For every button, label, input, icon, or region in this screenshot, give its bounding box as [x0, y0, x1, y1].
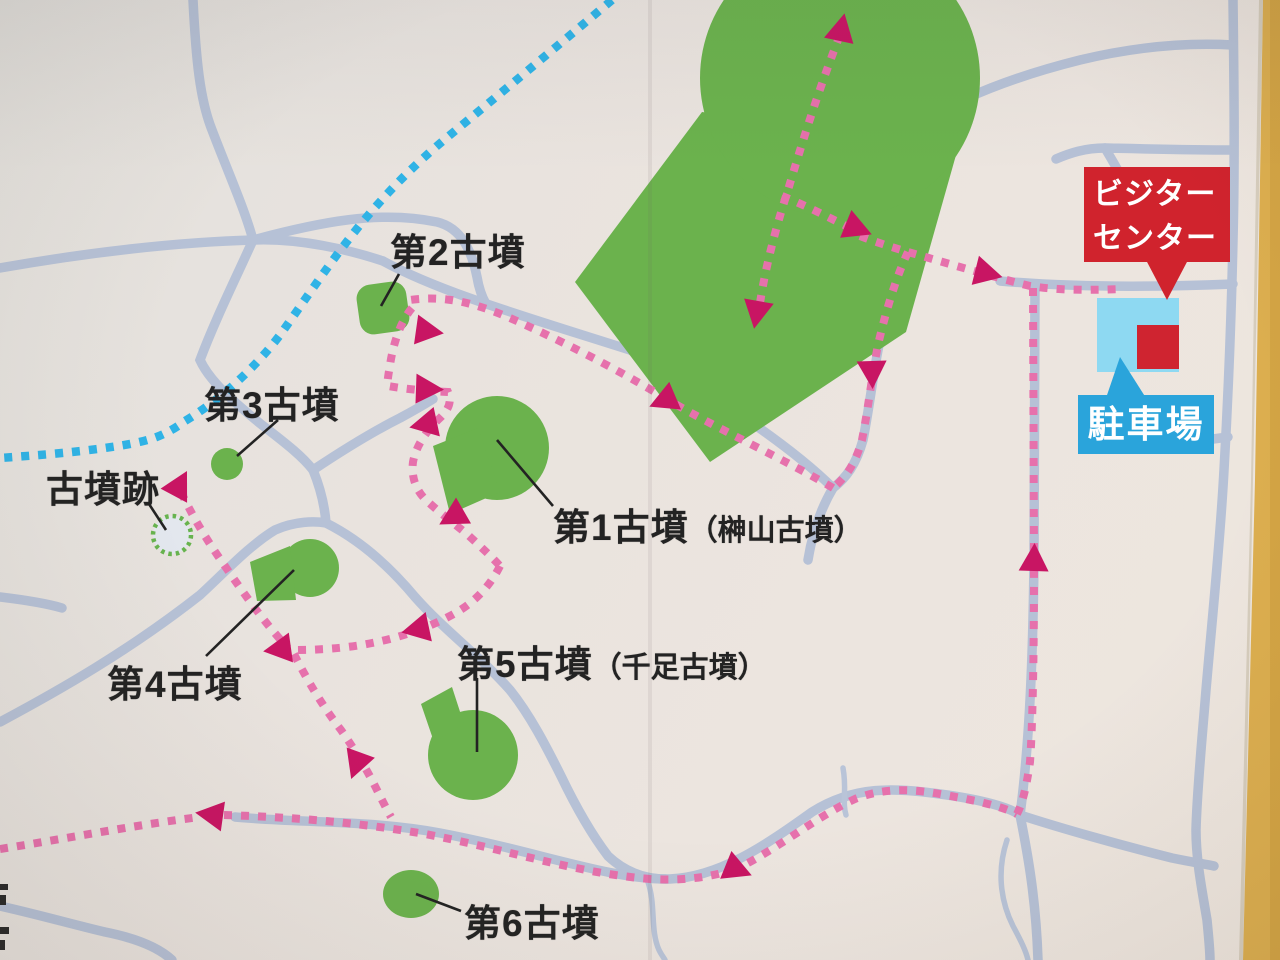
route-arrow [337, 748, 375, 785]
mound-kofun4 [250, 539, 339, 601]
label-kofun3-text: 第3古墳 [204, 385, 340, 426]
cropped-glyph-fragments [0, 884, 9, 950]
label-kofun1: 第1古墳（榊山古墳） [553, 497, 863, 551]
mound-kofun-ato-ring [153, 516, 191, 554]
label-kofun4: 第4古墳 [107, 654, 243, 708]
label-kofun2: 第2古墳 [390, 222, 526, 276]
label-kofun2-text: 第2古墳 [390, 232, 526, 273]
label-kofun6: 第6古墳 [464, 893, 600, 947]
route-arrow [161, 464, 201, 503]
mound-kofun5 [421, 687, 518, 800]
road [193, 0, 253, 240]
route-arrow [398, 612, 432, 647]
stream [843, 768, 846, 815]
label-kofun5-alias: （千足古墳） [593, 652, 767, 684]
mound-kofun1 [433, 396, 549, 514]
route-arrow [1019, 542, 1050, 571]
parking-sign: 駐車場 [1078, 395, 1214, 454]
cropped-glyph-fragment [0, 884, 8, 890]
road [1196, 0, 1234, 960]
road [0, 597, 62, 608]
mound-kofun3 [211, 448, 243, 480]
label-kofun-ato-text: 古墳跡 [46, 469, 160, 510]
pink-dotted-route [0, 40, 1122, 880]
stream [648, 882, 665, 960]
wall-shadow-strip [1270, 0, 1280, 960]
mound-kofun6 [383, 870, 439, 918]
parking-sign-text: 駐車場 [1088, 404, 1205, 445]
route-segment [0, 790, 1017, 879]
visitor-center-line2: センター [1093, 217, 1230, 261]
visitor-center-sign-pointer [1146, 260, 1188, 300]
label-kofun3: 第3古墳 [204, 375, 340, 429]
road [0, 906, 172, 960]
road [1056, 148, 1233, 159]
route-segment [294, 654, 391, 817]
parking-sign-pointer [1106, 357, 1146, 398]
route-arrow [857, 360, 888, 389]
label-kofun5-text: 第5古墳 [457, 644, 593, 685]
map-canvas [0, 0, 1280, 960]
map-photo: 第2古墳 第3古墳 古墳跡 第1古墳（榊山古墳） 第4古墳 第5古墳（千足古墳）… [0, 0, 1280, 960]
route-arrow [193, 798, 225, 832]
visitor-center-sign: ビジター センター [1084, 167, 1230, 262]
label-kofun1-text: 第1古墳 [553, 507, 689, 548]
cropped-glyph-fragment [0, 940, 5, 950]
label-kofun1-alias: （榊山古墳） [689, 515, 863, 547]
label-kofun4-text: 第4古墳 [107, 664, 243, 705]
road [0, 240, 383, 268]
label-kofun-ato: 古墳跡 [46, 459, 160, 513]
road [1000, 281, 1233, 286]
route-arrow [414, 315, 446, 349]
cropped-glyph-fragment [0, 927, 9, 934]
route-arrow [972, 256, 1006, 292]
road [313, 470, 326, 523]
label-kofun6-text: 第6古墳 [464, 903, 600, 944]
cropped-glyph-fragment [0, 895, 6, 905]
road [200, 240, 313, 470]
visitor-center-line1: ビジター [1093, 173, 1230, 217]
label-kofun5: 第5古墳（千足古墳） [457, 634, 767, 688]
